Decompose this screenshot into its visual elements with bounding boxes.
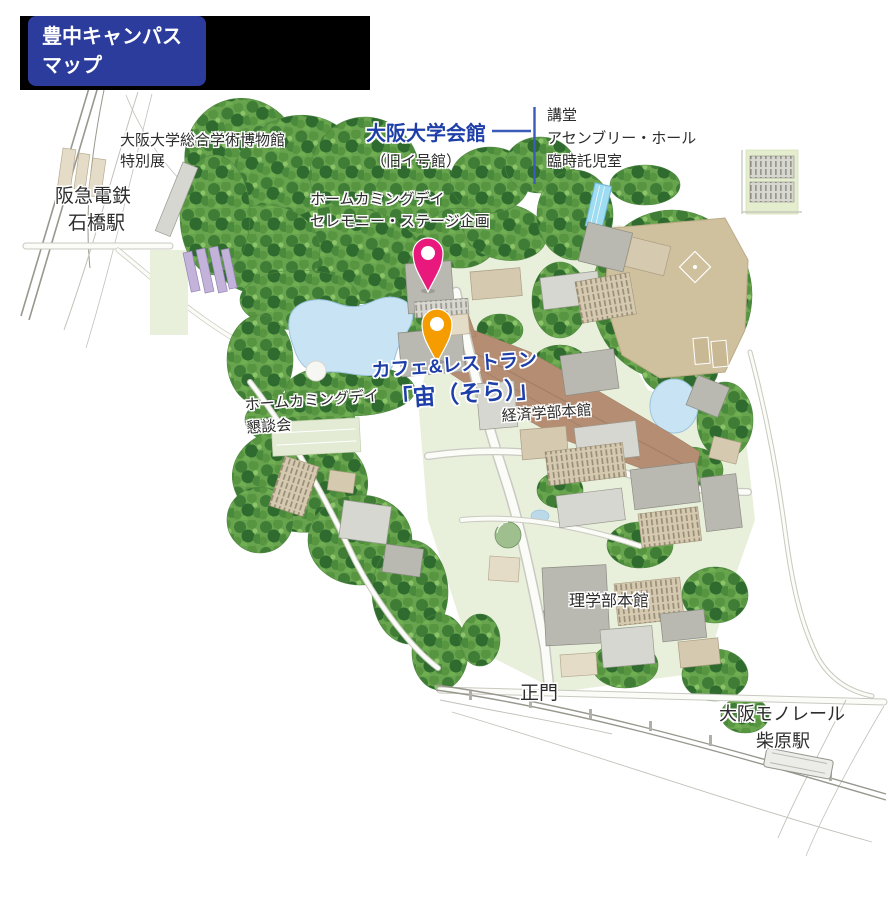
title-banner: 豊中キャンパス マップ [20, 16, 370, 90]
label-monorail-station: 大阪モノレール 柴原駅 [719, 701, 845, 755]
label-hall-facilities: 講堂 アセンブリー・ホール 臨時託児室 [547, 104, 696, 173]
page-title-line2: マップ [42, 52, 206, 81]
label-homecoming-meeting: ホームカミングデイ 懇談会 [244, 385, 381, 440]
label-university-hall: 大阪大学会館 [366, 124, 486, 145]
label-hankyu-station: 阪急電鉄 石橋駅 [55, 183, 131, 237]
label-university-hall-sub: （旧イ号館） [371, 151, 461, 172]
campus-map-page: 豊中キャンパス マップ 大阪大学総合学術博物館 特別展 阪急電鉄 石橋駅 大阪大… [0, 0, 888, 903]
label-homecoming-ceremony: ホームカミングデイ セレモニー・ステージ企画 [310, 189, 490, 233]
label-main-gate: 正門 [520, 683, 558, 704]
page-title: 豊中キャンパス マップ [28, 16, 206, 86]
label-science-main: 理学部本館 [569, 591, 649, 612]
label-museum: 大阪大学総合学術博物館 特別展 [120, 130, 285, 172]
page-title-line1: 豊中キャンパス [42, 23, 206, 52]
pond-island [306, 361, 326, 381]
